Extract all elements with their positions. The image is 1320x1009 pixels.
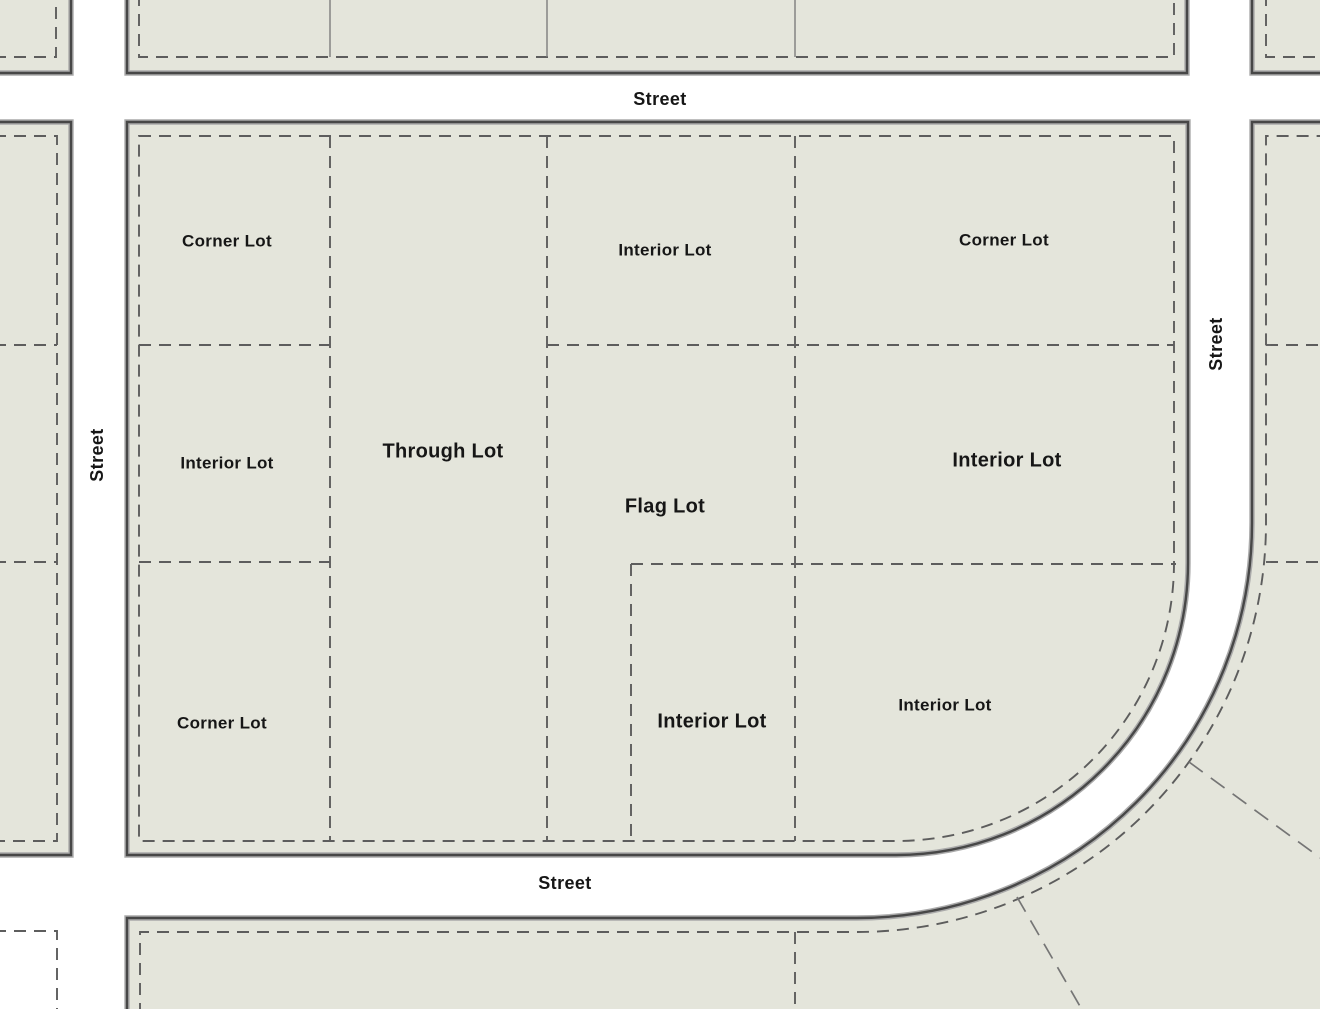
street-label-left: Street xyxy=(87,428,107,481)
lot-label-corner-lot-bottom-left: Corner Lot xyxy=(177,713,267,732)
block-top-main xyxy=(127,0,1187,73)
lot-types-diagram: StreetStreetStreetStreetCorner LotInteri… xyxy=(0,0,1320,1009)
lot-label-through-lot: Through Lot xyxy=(382,440,503,462)
lot-label-interior-lot-bottom-mid: Interior Lot xyxy=(657,710,766,732)
lot-label-interior-lot-right: Interior Lot xyxy=(952,449,1061,471)
street-label-bottom: Street xyxy=(538,873,591,893)
setback-bottom-left-block xyxy=(0,931,57,1009)
lot-label-corner-lot-top-left: Corner Lot xyxy=(182,231,272,250)
lot-label-interior-lot-top: Interior Lot xyxy=(618,240,711,259)
lot-label-interior-lot-left: Interior Lot xyxy=(180,453,273,472)
street-label-right: Street xyxy=(1206,317,1226,370)
lot-label-corner-lot-top-right: Corner Lot xyxy=(959,230,1049,249)
lot-label-flag-lot: Flag Lot xyxy=(625,495,705,517)
lot-label-interior-lot-bottom-right: Interior Lot xyxy=(898,695,991,714)
block-top-left xyxy=(0,0,71,73)
diagram-canvas: StreetStreetStreetStreetCorner LotInteri… xyxy=(0,0,1320,1009)
block-top-right xyxy=(1252,0,1320,73)
street-label-top: Street xyxy=(633,89,686,109)
block-left xyxy=(0,122,71,855)
